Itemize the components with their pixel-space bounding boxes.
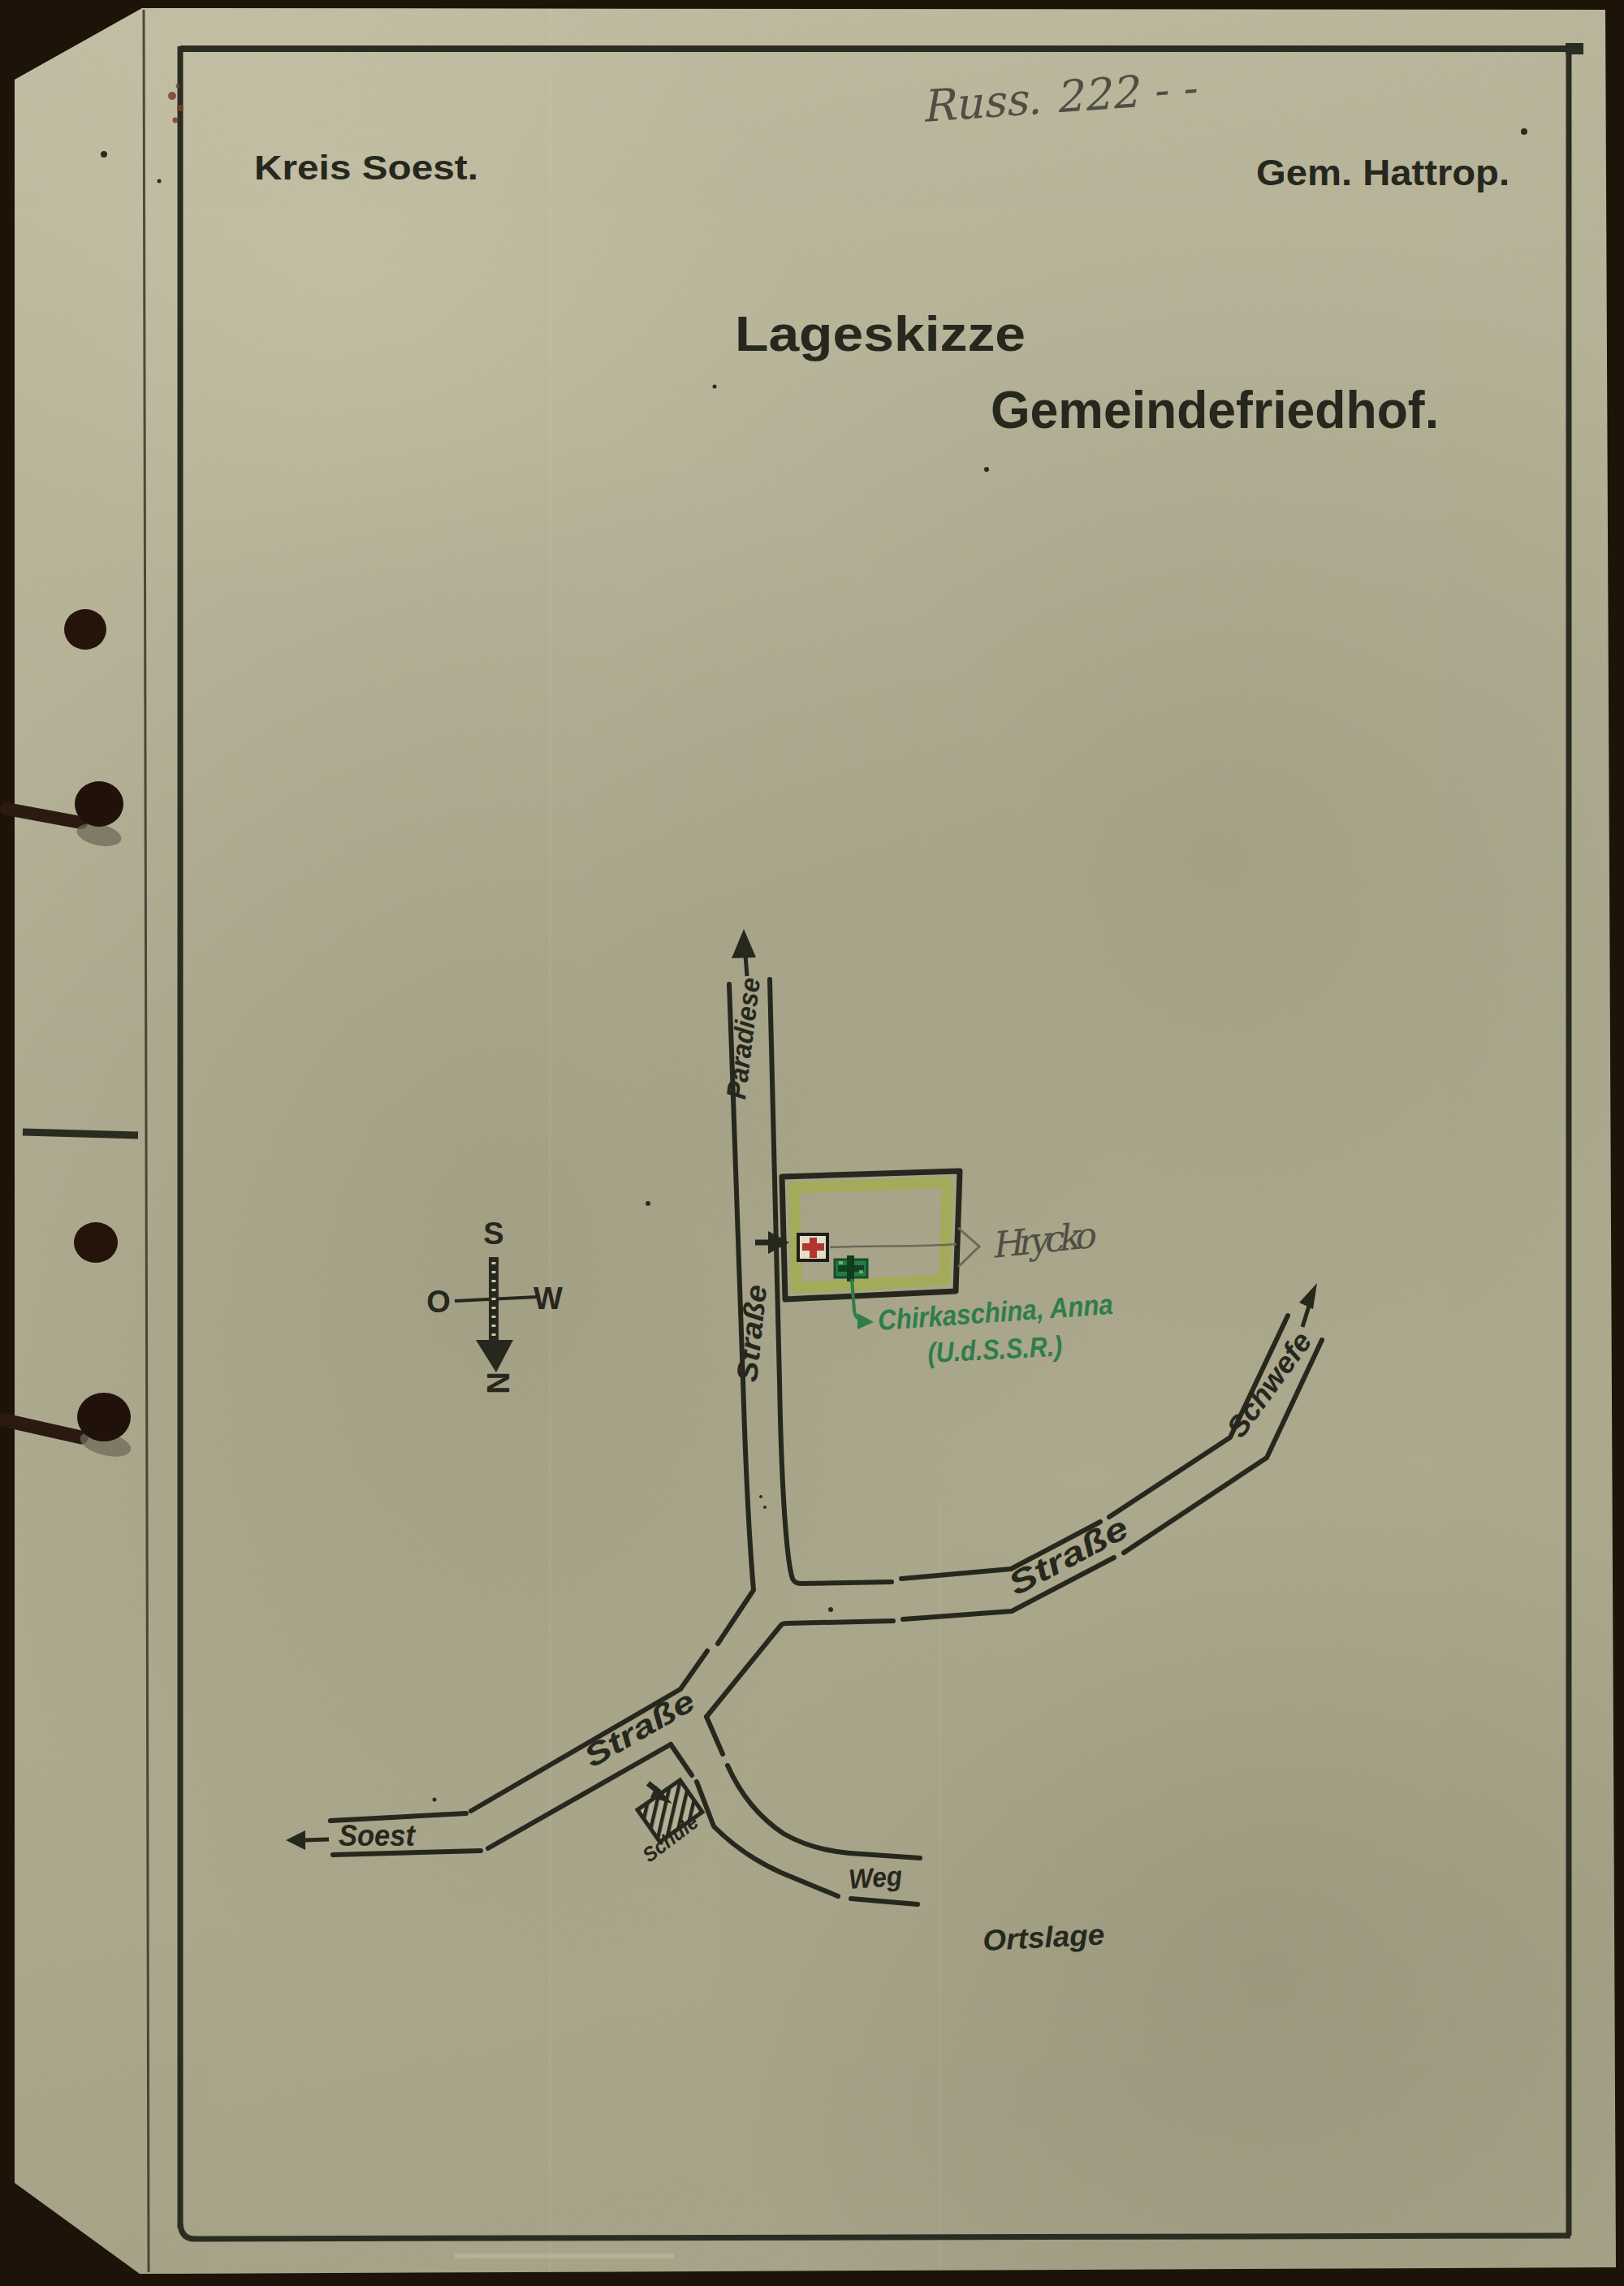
grave-marker-red-cross [798, 1234, 827, 1260]
place-label-ortslage: Ortslage [982, 1917, 1105, 1957]
margin-mark [23, 1132, 138, 1135]
municipality-label: Gem. Hattrop. [1256, 153, 1510, 192]
scanned-document: Russ. 222 - - Kreis Soest. Gem. Hattrop.… [0, 0, 1624, 2286]
road-label-weg: Weg [848, 1860, 904, 1895]
compass-label-west: W [533, 1281, 563, 1316]
punch-hole [64, 609, 106, 650]
scan-streak [549, 0, 551, 2286]
district-label: Kreis Soest. [254, 149, 478, 187]
place-label-soest: Soest [339, 1819, 417, 1852]
compass-label-east: O [426, 1285, 451, 1319]
map-subtitle: Gemeindefriedhof. [991, 381, 1439, 439]
punch-hole [75, 781, 123, 827]
compass-label-north: N [481, 1372, 515, 1394]
map-title: Lageskizze [735, 305, 1026, 361]
punch-hole [74, 1222, 118, 1263]
grave-marker-green [835, 1255, 867, 1281]
compass-label-south: S [483, 1216, 503, 1251]
scan-streak [939, 1502, 941, 2286]
paper-scuff [455, 2254, 674, 2258]
punch-hole [77, 1393, 131, 1441]
